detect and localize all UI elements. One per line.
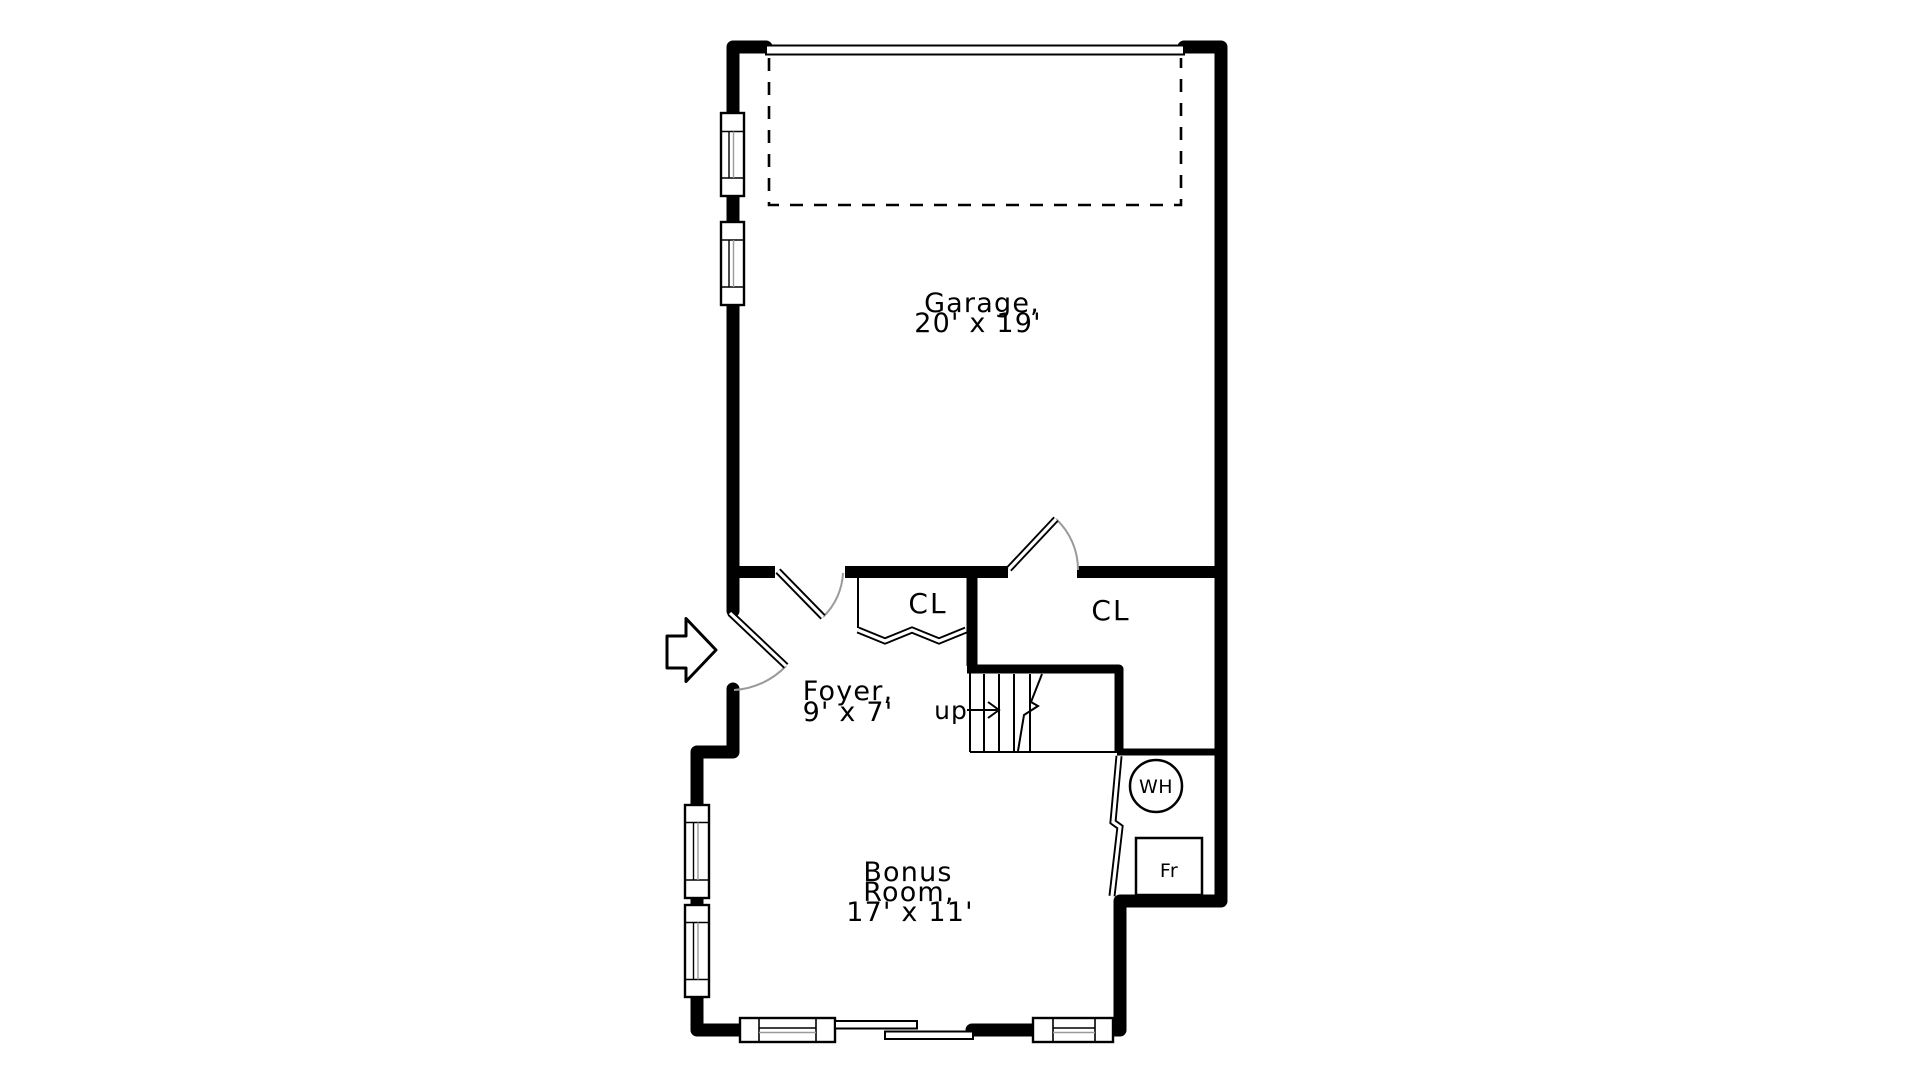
closet-right-label: CL (1091, 594, 1130, 627)
garage-door-header (766, 46, 1184, 55)
sliding-door-panel-2 (885, 1032, 973, 1040)
water-heater-label: WH (1139, 776, 1173, 798)
window-garage-left-2 (721, 222, 744, 305)
stairs-up-label: up (934, 696, 968, 725)
window-bonus-bottom-1 (740, 1018, 835, 1042)
floor-plan-page: Garage, 20' x 19' Foyer, 9' x 7' Bonus R… (0, 0, 1920, 1080)
freezer-label: Fr (1160, 860, 1178, 882)
window-bonus-left-2 (685, 905, 709, 997)
window-bonus-left-1 (685, 805, 709, 898)
window-garage-left-1 (721, 113, 744, 196)
window-bonus-bottom-2 (1033, 1018, 1113, 1042)
floor-plan-svg: Garage, 20' x 19' Foyer, 9' x 7' Bonus R… (0, 0, 1920, 1080)
sliding-door-panel-1 (835, 1021, 917, 1029)
foyer-dims: 9' x 7' (803, 697, 894, 728)
closet-left-label: CL (908, 587, 947, 620)
garage-dims: 20' x 19' (914, 308, 1042, 339)
bonus-room-dims: 17' x 11' (846, 897, 974, 928)
